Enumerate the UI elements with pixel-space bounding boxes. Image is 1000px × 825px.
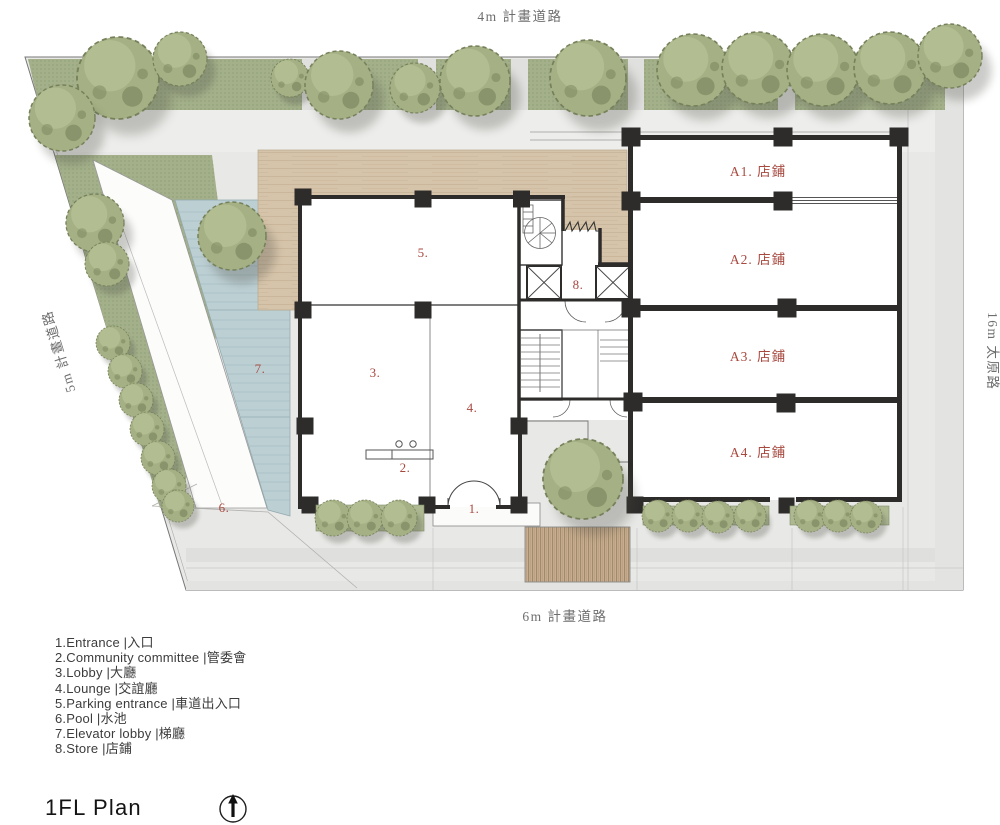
room-label-pool: 6. (219, 500, 230, 515)
legend-item: 7.Elevator lobby |梯廳 (55, 726, 246, 741)
room-label-committee: 2. (400, 460, 411, 475)
legend-item: 6.Pool |水池 (55, 711, 246, 726)
legend-item: 2.Community committee |管委會 (55, 650, 246, 665)
store-unit-label-a1: A1. 店鋪 (730, 164, 786, 179)
room-label-lounge: 4. (467, 400, 478, 415)
north-arrow-icon (220, 794, 246, 822)
elevator-left (527, 266, 561, 299)
road-label-right: 16m 太原路 (985, 312, 1000, 390)
room-label-store: 8. (573, 277, 584, 292)
store-unit-label-a3: A3. 店鋪 (730, 349, 786, 364)
floor-plan-page: 4m 計畫道路 6m 計畫道路 16m 太原路 5m 計畫道路 A1. 店鋪 A… (0, 0, 1000, 825)
legend-item: 5.Parking entrance |車道出入口 (55, 696, 246, 711)
legend: 1.Entrance |入口 2.Community committee |管委… (55, 635, 246, 757)
road-label-bottom: 6m 計畫道路 (522, 609, 607, 624)
plan-title: 1FL Plan (45, 795, 142, 821)
road-label-top: 4m 計畫道路 (477, 9, 562, 24)
room-label-lobby: 3. (370, 365, 381, 380)
legend-item: 4.Lounge |交誼廳 (55, 681, 246, 696)
elevator-right (596, 266, 630, 299)
wood-deck (525, 527, 630, 582)
road-label-left: 5m 計畫道路 (39, 308, 78, 394)
room-label-parking: 5. (418, 245, 429, 260)
store-unit-label-a2: A2. 店鋪 (730, 252, 786, 267)
room-label-elevator-lobby: 7. (255, 361, 266, 376)
legend-item: 3.Lobby |大廳 (55, 665, 246, 680)
legend-item: 1.Entrance |入口 (55, 635, 246, 650)
store-unit-label-a4: A4. 店鋪 (730, 445, 786, 460)
legend-item: 8.Store |店鋪 (55, 741, 246, 756)
room-label-entrance: 1. (469, 501, 480, 516)
